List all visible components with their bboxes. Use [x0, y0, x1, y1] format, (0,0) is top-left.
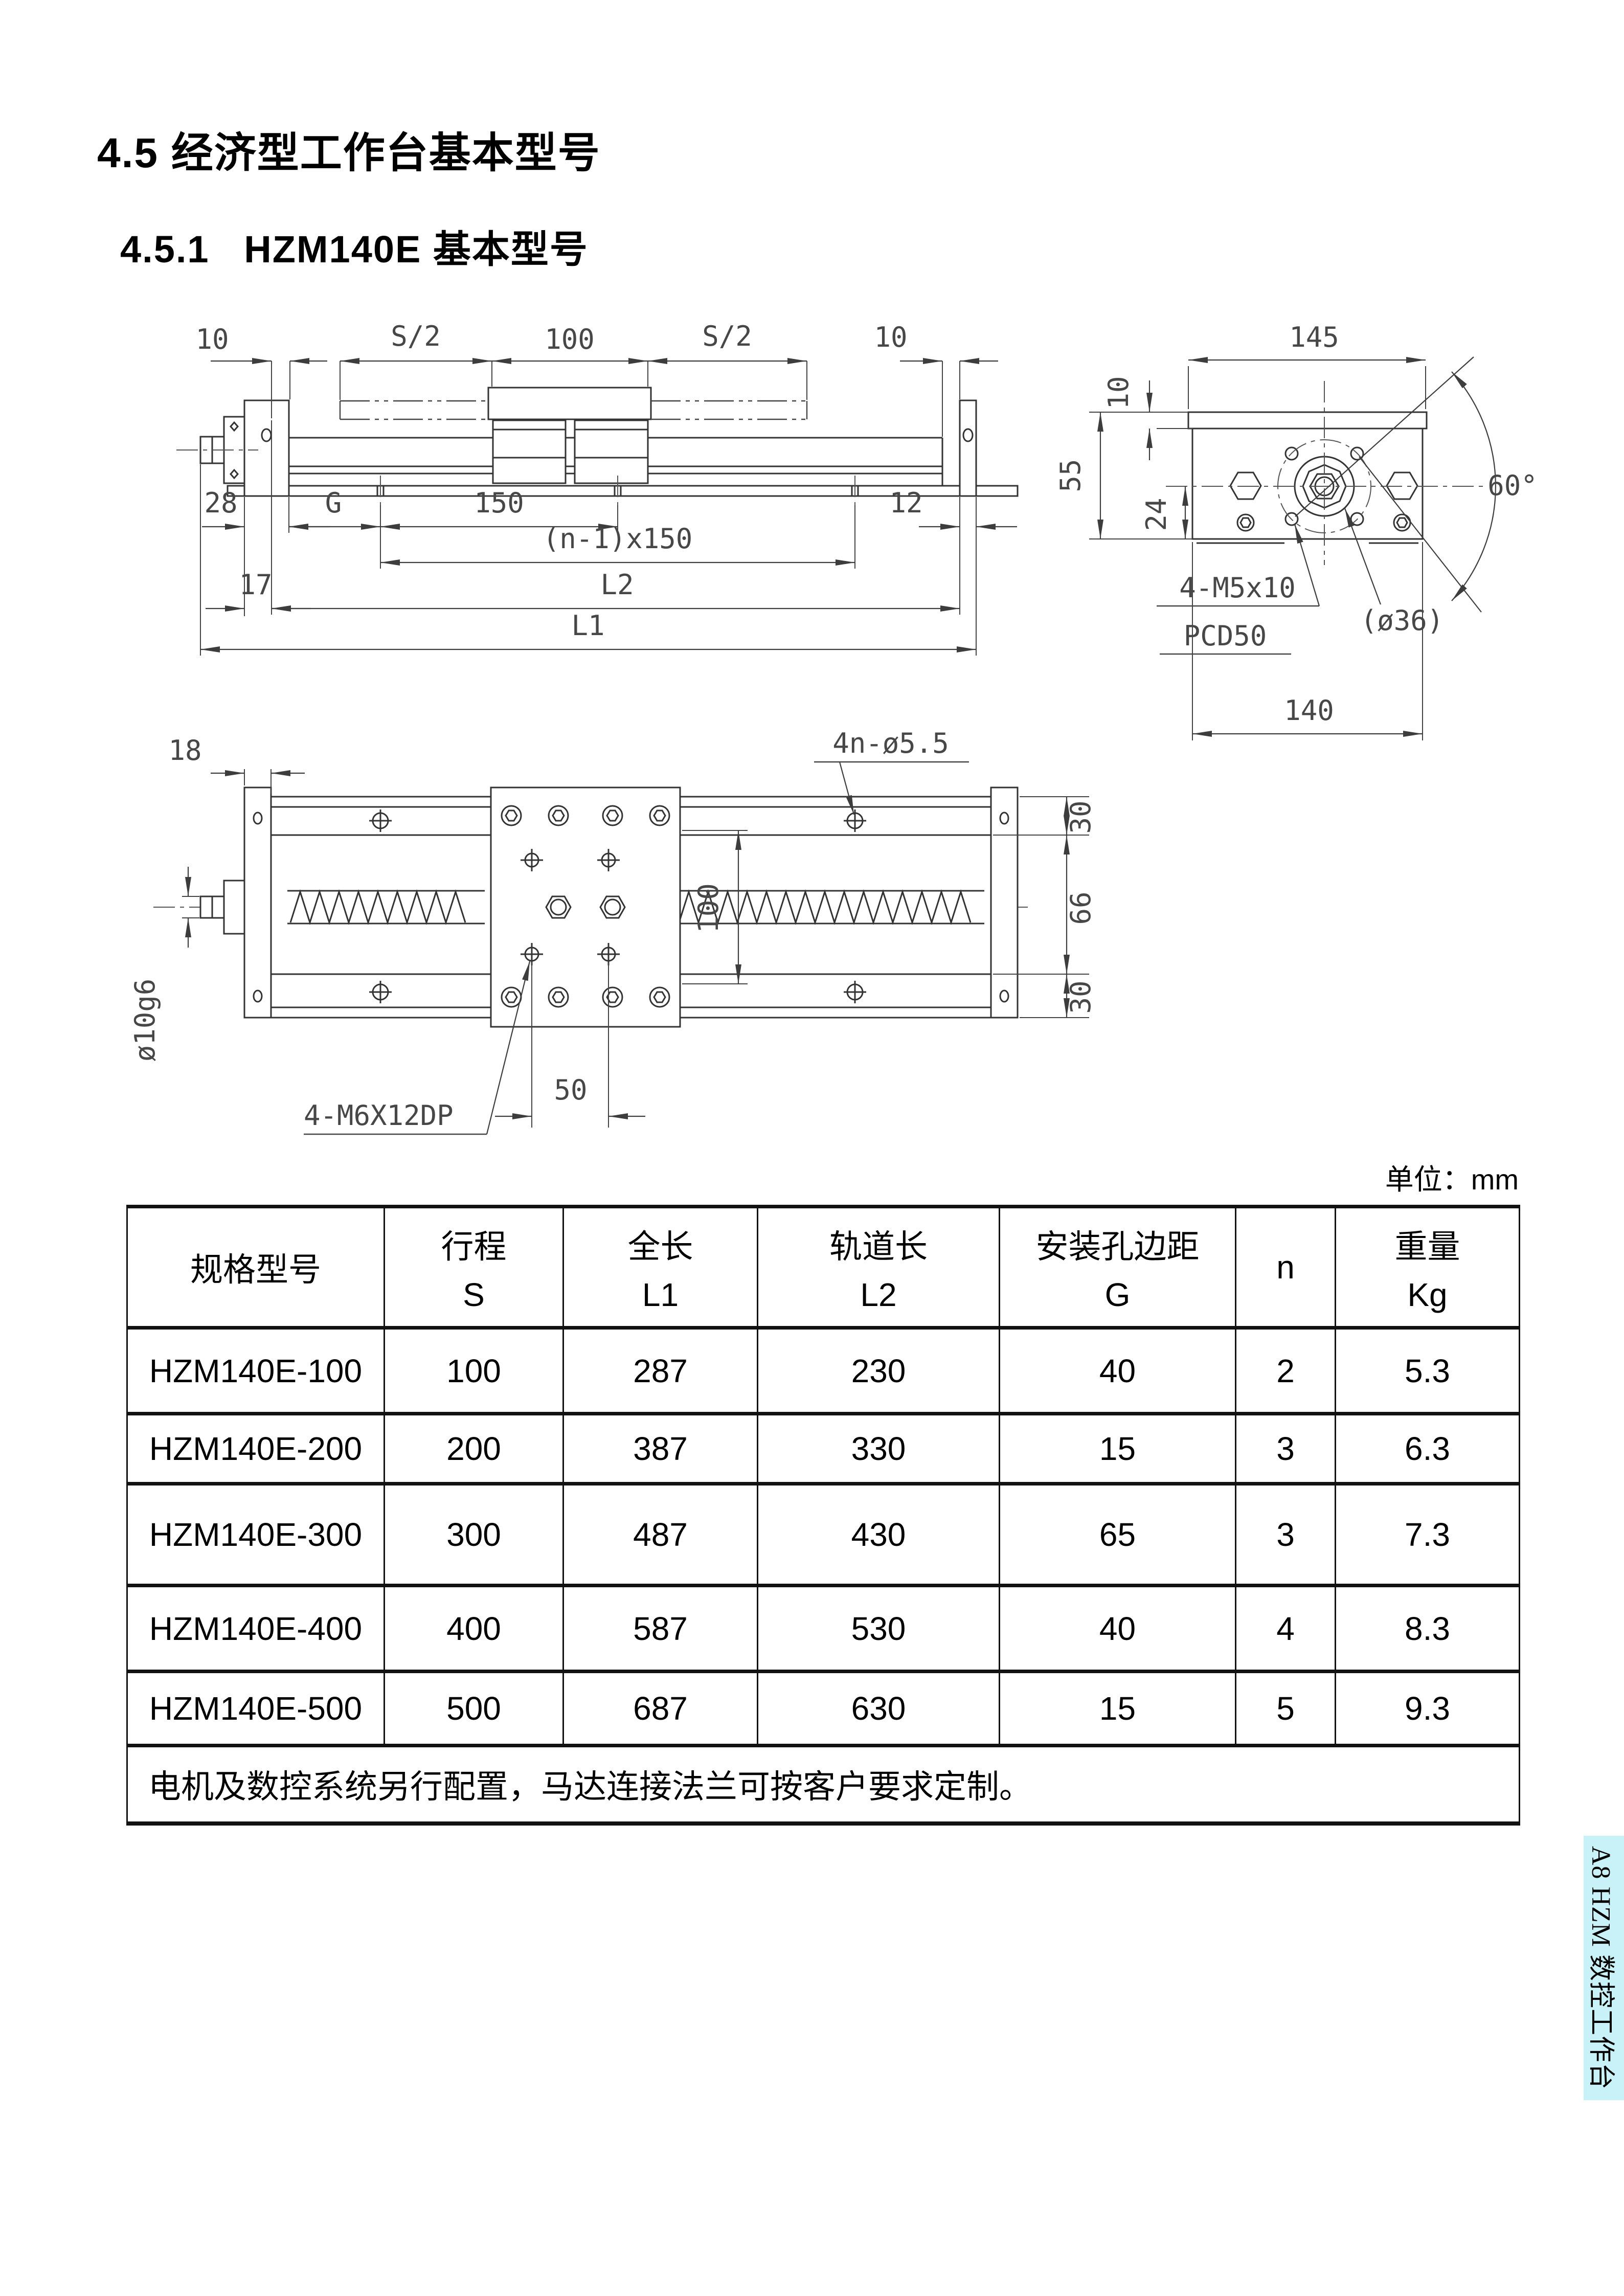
dim-s2-left: S/2: [391, 320, 441, 352]
table-row: HZM140E-200 200 387 330 15 3 6.3: [127, 1414, 1520, 1484]
col-header-model: 规格型号: [127, 1207, 385, 1328]
cell-hole-edge: 65: [1000, 1484, 1236, 1586]
col-header-n: n: [1236, 1207, 1336, 1328]
side-tab-label: A8 HZM 数控工作台: [1584, 1836, 1624, 2100]
plan-view-drawing: 18 4n-ø5.5 ø10g6 100 30 66 30 4-M6X12DP …: [118, 716, 1130, 1145]
table-row: HZM140E-500 500 687 630 15 5 9.3: [127, 1672, 1520, 1746]
cell-rail: 330: [758, 1414, 1000, 1484]
dim-100-width: 100: [692, 883, 725, 933]
cell-weight: 9.3: [1336, 1672, 1520, 1746]
cell-model: HZM140E-200: [127, 1414, 385, 1484]
end-view-extension-lines: [1089, 366, 1426, 740]
cell-model: HZM140E-300: [127, 1484, 385, 1586]
cell-length: 687: [563, 1672, 758, 1746]
dim-100: 100: [545, 323, 595, 355]
cell-length: 387: [563, 1414, 758, 1484]
table-header-row: 规格型号 行程S 全长L1 轨道长L2 安装孔边距G n 重量Kg: [127, 1207, 1520, 1328]
dim-10-left: 10: [195, 323, 229, 355]
side-tab: A8 HZM 数控工作台: [1584, 1836, 1624, 2100]
cell-length: 587: [563, 1586, 758, 1672]
dim-g: G: [325, 487, 342, 519]
cell-stroke: 200: [385, 1414, 563, 1484]
end-view-drawing: 145 10 55 24 60° 4-M5x10 PCD50 (ø36) 140: [1048, 286, 1624, 752]
subsection-heading: 4.5.1 HZM140E 基本型号: [120, 219, 589, 274]
callout-bore36: (ø36): [1361, 604, 1444, 637]
cell-hole-edge: 40: [1000, 1328, 1236, 1414]
col-header-length: 全长L1: [563, 1207, 758, 1328]
dim-shaft-dia: ø10g6: [129, 979, 161, 1062]
dim-12: 12: [889, 487, 922, 519]
cell-weight: 7.3: [1336, 1484, 1520, 1586]
cell-rail: 630: [758, 1672, 1000, 1746]
col-header-weight: 重量Kg: [1336, 1207, 1520, 1328]
cell-stroke: 100: [385, 1328, 563, 1414]
unit-label: 单位：mm: [1202, 1157, 1519, 1198]
dim-n150: (n-1)x150: [543, 523, 693, 555]
cell-stroke: 500: [385, 1672, 563, 1746]
end-view-geometry: [1188, 412, 1427, 543]
cell-rail: 230: [758, 1328, 1000, 1414]
dim-30-top: 30: [1065, 800, 1097, 834]
dim-l2: L2: [600, 569, 634, 601]
cell-model: HZM140E-100: [127, 1328, 385, 1414]
end-view-centerlines: [1166, 381, 1483, 565]
callout-pcd50: PCD50: [1184, 620, 1267, 652]
dim-50: 50: [554, 1074, 587, 1106]
table-row: HZM140E-400 400 587 530 40 4 8.3: [127, 1586, 1520, 1672]
cell-n: 5: [1236, 1672, 1336, 1746]
cell-n: 3: [1236, 1414, 1336, 1484]
section-heading: 4.5 经济型工作台基本型号: [97, 119, 601, 179]
cell-hole-edge: 40: [1000, 1586, 1236, 1672]
dim-l1: L1: [571, 610, 604, 642]
cell-hole-edge: 15: [1000, 1414, 1236, 1484]
table-row: HZM140E-100 100 287 230 40 2 5.3: [127, 1328, 1520, 1414]
col-header-rail: 轨道长L2: [758, 1207, 1000, 1328]
cell-weight: 5.3: [1336, 1328, 1520, 1414]
dim-150: 150: [474, 487, 524, 519]
col-header-stroke: 行程S: [385, 1207, 563, 1328]
spec-table: 规格型号 行程S 全长L1 轨道长L2 安装孔边距G n 重量Kg HZM140…: [126, 1205, 1520, 1826]
cell-n: 3: [1236, 1484, 1336, 1586]
table-note: 电机及数控系统另行配置，马达连接法兰可按客户要求定制。: [127, 1746, 1520, 1824]
cell-model: HZM140E-500: [127, 1672, 385, 1746]
dim-10-plate: 10: [1102, 376, 1135, 409]
cell-n: 4: [1236, 1586, 1336, 1672]
cell-weight: 6.3: [1336, 1414, 1520, 1484]
cell-stroke: 300: [385, 1484, 563, 1586]
front-view-geometry: [200, 388, 1018, 496]
dim-4n-holes: 4n-ø5.5: [832, 727, 949, 759]
dim-145: 145: [1289, 321, 1339, 353]
table-note-row: 电机及数控系统另行配置，马达连接法兰可按客户要求定制。: [127, 1746, 1520, 1824]
cell-n: 2: [1236, 1328, 1336, 1414]
cell-rail: 530: [758, 1586, 1000, 1672]
callout-m6: 4-M6X12DP: [304, 1099, 454, 1132]
dim-55: 55: [1054, 459, 1087, 492]
cell-rail: 430: [758, 1484, 1000, 1586]
catalog-page: 4.5 经济型工作台基本型号 4.5.1 HZM140E 基本型号: [0, 0, 1624, 2296]
cell-model: HZM140E-400: [127, 1586, 385, 1672]
front-view-drawing: 10 S/2 100 S/2 10 28 G 150 12 (n-1)x150 …: [153, 286, 1048, 690]
cell-weight: 8.3: [1336, 1586, 1520, 1672]
dim-30-bottom: 30: [1065, 980, 1097, 1014]
dim-10-right: 10: [874, 321, 907, 353]
col-header-hole-edge: 安装孔边距G: [1000, 1207, 1236, 1328]
table-row: HZM140E-300 300 487 430 65 3 7.3: [127, 1484, 1520, 1586]
cell-hole-edge: 15: [1000, 1672, 1236, 1746]
dim-17: 17: [239, 569, 272, 601]
dim-18: 18: [168, 734, 201, 767]
dim-60deg: 60°: [1487, 469, 1538, 502]
callout-m5: 4-M5x10: [1179, 572, 1296, 604]
dim-s2-right: S/2: [702, 320, 752, 352]
dim-66: 66: [1065, 891, 1097, 925]
dim-24: 24: [1140, 498, 1172, 531]
front-view-dimensions: 10 S/2 100 S/2 10 28 G 150 12 (n-1)x150 …: [195, 320, 1017, 649]
cell-length: 287: [563, 1328, 758, 1414]
end-view-dimensions: 145 10 55 24 60° 4-M5x10 PCD50 (ø36) 140: [1054, 321, 1538, 734]
cell-length: 487: [563, 1484, 758, 1586]
cell-stroke: 400: [385, 1586, 563, 1672]
dim-140: 140: [1284, 694, 1334, 727]
dim-28: 28: [204, 487, 237, 519]
